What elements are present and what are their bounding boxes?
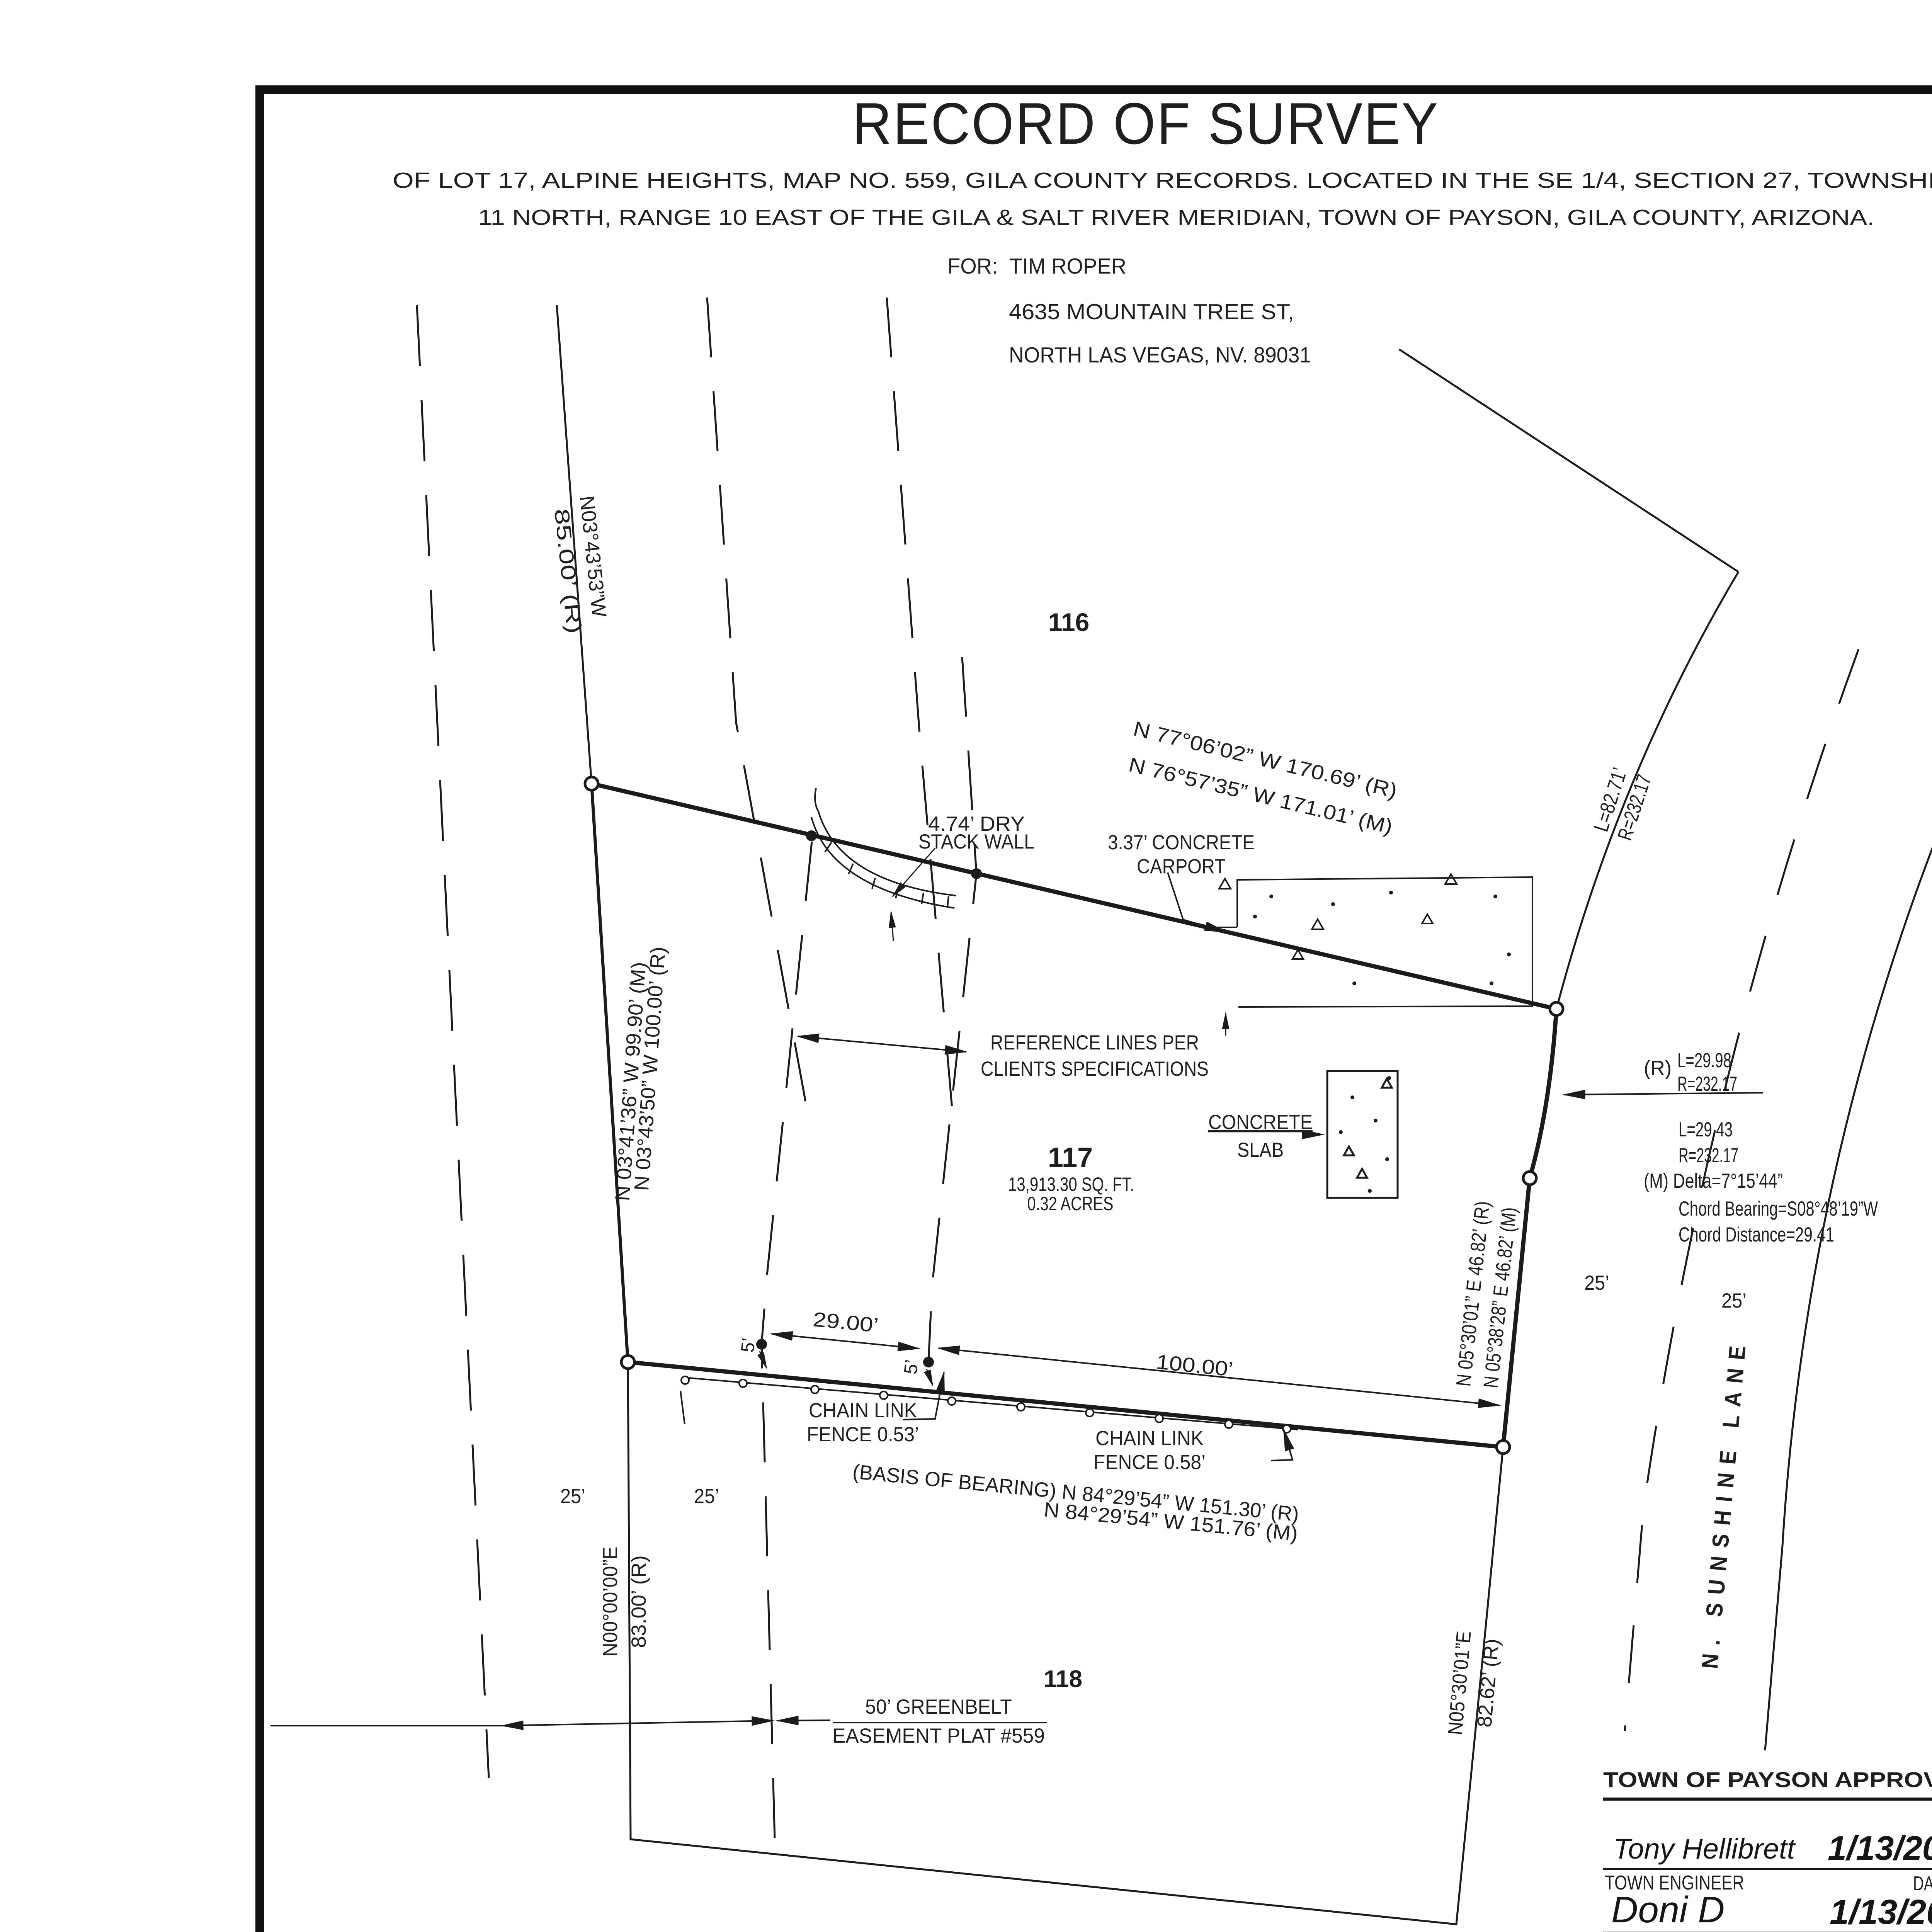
svg-text:FENCE 0.53’: FENCE 0.53’: [807, 1423, 919, 1446]
svg-text:100.00’: 100.00’: [1155, 1350, 1234, 1381]
svg-text:DATE: DATE: [1913, 1872, 1932, 1895]
svg-text:N00°00’00”E: N00°00’00”E: [599, 1547, 622, 1657]
svg-text:25’: 25’: [1584, 1272, 1609, 1294]
svg-text:11 NORTH, RANGE 10 EAST OF THE: 11 NORTH, RANGE 10 EAST OF THE GILA & SA…: [478, 205, 1874, 230]
svg-text:CLIENTS SPECIFICATIONS: CLIENTS SPECIFICATIONS: [981, 1058, 1209, 1080]
svg-text:R=232.17: R=232.17: [1677, 1073, 1737, 1095]
svg-text:CHAIN LINK: CHAIN LINK: [1095, 1427, 1204, 1450]
svg-text:TOWN OF PAYSON APPROVALS: TOWN OF PAYSON APPROVALS: [1603, 1767, 1932, 1792]
svg-text:Chord Bearing=S08°48’19”W: Chord Bearing=S08°48’19”W: [1679, 1197, 1878, 1220]
svg-text:RECORD OF SURVEY: RECORD OF SURVEY: [852, 91, 1439, 156]
svg-text:5’: 5’: [737, 1337, 759, 1354]
svg-text:REFERENCE LINES PER: REFERENCE LINES PER: [990, 1031, 1199, 1054]
svg-text:13,913.30 SQ. FT.: 13,913.30 SQ. FT.: [1008, 1173, 1134, 1195]
svg-text:(R): (R): [1644, 1057, 1672, 1080]
svg-text:118: 118: [1044, 1666, 1082, 1692]
svg-text:82.62’ (R): 82.62’ (R): [1473, 1638, 1503, 1728]
svg-text:Chord Distance=29.41: Chord Distance=29.41: [1679, 1223, 1834, 1246]
svg-text:3.37’ CONCRETE: 3.37’ CONCRETE: [1108, 831, 1255, 854]
svg-text:R=232.17: R=232.17: [1679, 1144, 1738, 1167]
svg-text:25’: 25’: [1721, 1289, 1747, 1312]
svg-text:4635 MOUNTAIN TREE ST,: 4635 MOUNTAIN TREE ST,: [1009, 299, 1294, 324]
svg-text:117: 117: [1048, 1142, 1093, 1173]
svg-text:L=29.43: L=29.43: [1679, 1118, 1733, 1141]
svg-text:(M) Delta=7°15’44”: (M) Delta=7°15’44”: [1644, 1170, 1783, 1192]
svg-text:50’ GREENBELT: 50’ GREENBELT: [865, 1696, 1012, 1718]
svg-text:N. SUNSHINE LANE: N. SUNSHINE LANE: [1697, 1337, 1752, 1670]
svg-text:L=29.98: L=29.98: [1677, 1049, 1731, 1072]
svg-text:CARPORT: CARPORT: [1137, 855, 1226, 878]
svg-text:OF LOT 17, ALPINE HEIGHTS, MAP: OF LOT 17, ALPINE HEIGHTS, MAP NO. 559, …: [393, 168, 1932, 193]
svg-text:116: 116: [1048, 608, 1089, 636]
svg-text:NORTH LAS VEGAS, NV. 89031: NORTH LAS VEGAS, NV. 89031: [1009, 343, 1311, 367]
svg-text:STACK WALL: STACK WALL: [918, 830, 1034, 853]
svg-text:N05°30’01”E: N05°30’01”E: [1444, 1630, 1475, 1736]
svg-text:25’: 25’: [694, 1485, 719, 1508]
svg-text:SLAB: SLAB: [1237, 1139, 1284, 1162]
svg-text:5’: 5’: [900, 1359, 922, 1376]
svg-text:CONCRETE: CONCRETE: [1208, 1111, 1313, 1134]
svg-text:CHAIN LINK: CHAIN LINK: [809, 1399, 917, 1422]
svg-text:EASEMENT PLAT #559: EASEMENT PLAT #559: [832, 1725, 1045, 1747]
svg-text:29.00’: 29.00’: [812, 1308, 879, 1337]
svg-text:FOR: TIM ROPER: FOR: TIM ROPER: [947, 254, 1126, 279]
svg-text:FENCE 0.58’: FENCE 0.58’: [1094, 1451, 1206, 1474]
svg-text:83.00’ (R): 83.00’ (R): [628, 1555, 650, 1648]
svg-text:0.32 ACRES: 0.32 ACRES: [1027, 1193, 1114, 1214]
svg-text:25’: 25’: [560, 1485, 585, 1508]
